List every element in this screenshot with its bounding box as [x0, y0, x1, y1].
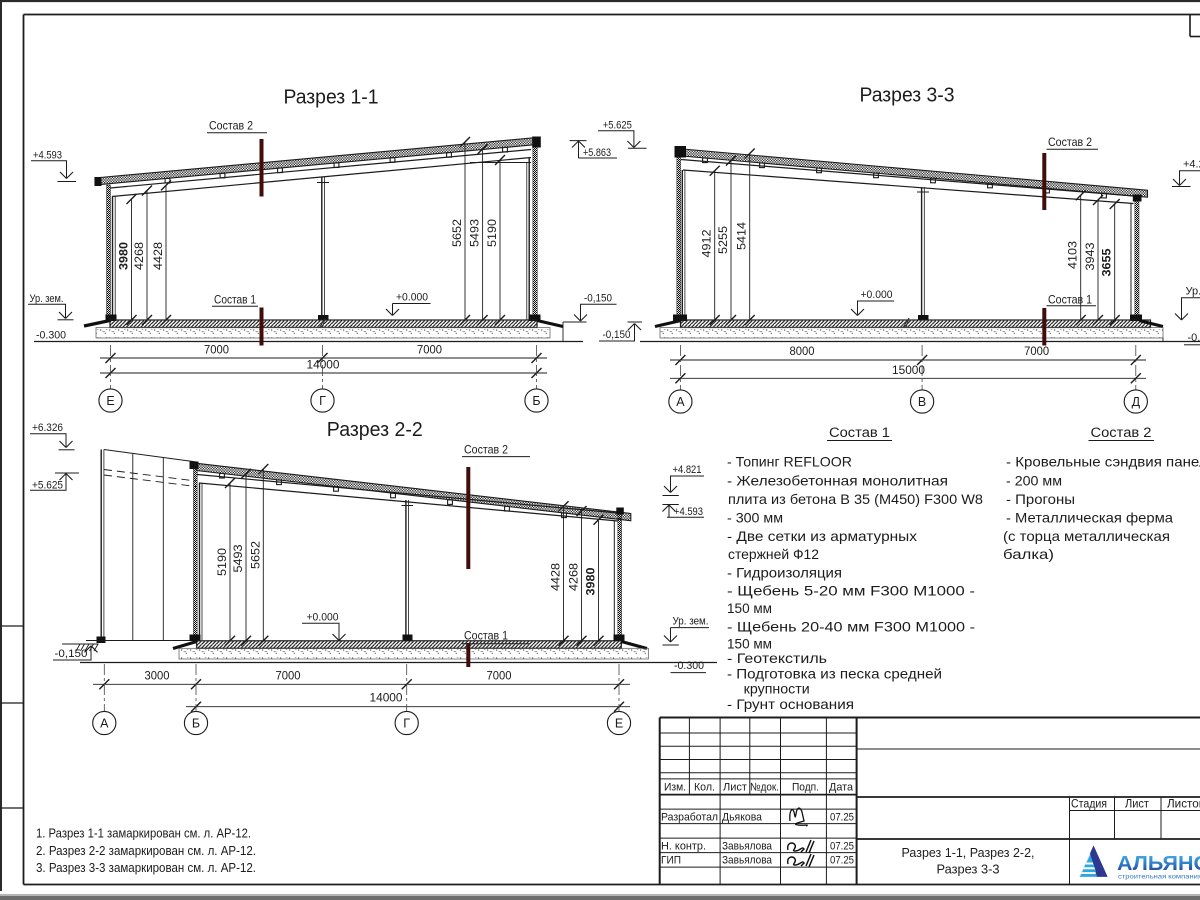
svg-text:- Кровельные сэндвия панели: - Кровельные сэндвия панели	[1006, 454, 1200, 470]
svg-text:5190: 5190	[217, 548, 229, 576]
svg-text:Разрез 1-1, Разрез 2-2,: Разрез 1-1, Разрез 2-2,	[902, 846, 1035, 860]
svg-text:(с торца металлическая: (с торца металлическая	[1003, 528, 1170, 544]
svg-text:А: А	[676, 395, 685, 409]
svg-text:7000: 7000	[204, 345, 229, 357]
svg-text:+4.293: +4.293	[1183, 159, 1200, 171]
svg-text:Состав 2: Состав 2	[209, 119, 253, 133]
svg-text:Состав 2: Состав 2	[464, 443, 508, 457]
svg-text:Б: Б	[532, 394, 540, 408]
svg-text:+5.863: +5.863	[583, 147, 611, 159]
svg-text:ГИП: ГИП	[661, 855, 681, 867]
svg-text:3. Разрез 3-3 замаркирован см.: 3. Разрез 3-3 замаркирован см. л. АР-12.	[36, 860, 256, 875]
svg-text:+0.000: +0.000	[861, 289, 893, 301]
svg-text:+0.000: +0.000	[307, 612, 339, 624]
svg-text:3980: 3980	[586, 568, 598, 596]
svg-text:Подп.: Подп.	[792, 782, 819, 794]
svg-text:- Топинг REFLOOR: - Топинг REFLOOR	[727, 454, 852, 470]
svg-text:Е: Е	[615, 716, 623, 730]
svg-text:- Щебень 20-40 мм F300 М1000: - Щебень 20-40 мм F300 М1000 -	[727, 618, 975, 634]
svg-text:4428: 4428	[153, 242, 165, 270]
svg-text:Состав 1: Состав 1	[464, 629, 508, 643]
svg-text:5493: 5493	[470, 219, 482, 247]
svg-text:Дата: Дата	[829, 782, 854, 794]
svg-text:+6.326: +6.326	[32, 422, 63, 434]
svg-text:Изм.: Изм.	[664, 782, 686, 794]
svg-text:крупности: крупности	[744, 680, 810, 696]
svg-text:+5.625: +5.625	[603, 120, 632, 132]
svg-text:строительная компания: строительная компания	[1118, 874, 1200, 881]
svg-text:-0.300: -0.300	[36, 330, 66, 342]
svg-text:4268: 4268	[134, 242, 146, 270]
svg-text:Разрез 1-1: Разрез 1-1	[284, 87, 379, 109]
svg-text:Дьякова: Дьякова	[722, 812, 763, 824]
svg-text:5255: 5255	[718, 226, 730, 254]
svg-text:Листов: Листов	[1167, 799, 1200, 811]
svg-text:- Щебень 5-20 мм F300 М1000: - Щебень 5-20 мм F300 М1000 -	[727, 582, 975, 598]
svg-text:2. Разрез 2-2 замаркирован см.: 2. Разрез 2-2 замаркирован см. л. АР-12.	[36, 843, 256, 858]
svg-text:4428: 4428	[551, 563, 563, 591]
svg-text:АЛЬЯНС: АЛЬЯНС	[1117, 852, 1200, 875]
svg-text:- Подготовка из песка средней: - Подготовка из песка средней	[727, 665, 942, 681]
svg-text:Ур. зем.: Ур. зем.	[1186, 286, 1200, 298]
svg-text:- Железобетонная монолитная: - Железобетонная монолитная	[727, 472, 948, 488]
svg-text:Кол.: Кол.	[694, 782, 715, 794]
svg-text:стержней Ф12: стержней Ф12	[728, 546, 819, 562]
svg-text:- Металлическая ферма: - Металлическая ферма	[1006, 510, 1173, 526]
svg-text:+4.593: +4.593	[33, 150, 62, 162]
svg-text:14000: 14000	[370, 693, 403, 705]
svg-text:4912: 4912	[702, 230, 714, 258]
svg-text:Завьялова: Завьялова	[722, 841, 773, 853]
svg-text:плита из бетона В 35 (М450) F3: плита из бетона В 35 (М450) F300 W8	[728, 491, 983, 507]
svg-text:150 мм: 150 мм	[727, 600, 772, 616]
svg-text:4268: 4268	[569, 563, 581, 591]
svg-text:Лист: Лист	[1125, 799, 1150, 811]
svg-text:Разрез 3-3: Разрез 3-3	[860, 85, 955, 107]
svg-text:14000: 14000	[307, 360, 340, 372]
svg-text:- 200 мм: - 200 мм	[1006, 472, 1062, 488]
svg-text:-0,150: -0,150	[55, 648, 88, 660]
svg-text:Е: Е	[106, 394, 114, 408]
svg-text:№док.: №док.	[750, 782, 779, 794]
svg-text:Стадия: Стадия	[1071, 799, 1107, 811]
svg-text:Завьялова: Завьялова	[722, 855, 773, 867]
svg-text:- Грунт основания: - Грунт основания	[727, 696, 854, 712]
svg-text:3655: 3655	[1102, 248, 1114, 277]
svg-text:3000: 3000	[145, 671, 170, 683]
svg-text:5190: 5190	[487, 219, 499, 247]
svg-text:5414: 5414	[737, 221, 749, 250]
svg-text:+5.625: +5.625	[32, 479, 63, 491]
svg-text:- 300 мм: - 300 мм	[727, 510, 783, 526]
svg-text:-0.300: -0.300	[674, 660, 704, 672]
svg-text:Состав 1: Состав 1	[214, 293, 256, 307]
svg-text:Г: Г	[319, 394, 326, 408]
svg-text:8000: 8000	[790, 346, 815, 358]
svg-text:Ур. зем.: Ур. зем.	[30, 293, 64, 305]
svg-text:Состав 1: Состав 1	[1048, 293, 1092, 307]
svg-text:150 мм: 150 мм	[727, 635, 772, 651]
svg-text:+4.593: +4.593	[674, 506, 703, 518]
svg-text:Разрез 2-2: Разрез 2-2	[327, 419, 423, 441]
svg-text:А: А	[100, 716, 109, 730]
svg-text:07.25: 07.25	[830, 812, 854, 824]
svg-text:3943: 3943	[1085, 243, 1097, 271]
svg-text:Состав 1: Состав 1	[829, 425, 890, 440]
svg-text:5493: 5493	[233, 545, 245, 573]
svg-text:+4.821: +4.821	[673, 464, 702, 476]
svg-text:-0.300: -0.300	[1188, 332, 1200, 344]
svg-text:Состав 2: Состав 2	[1091, 425, 1152, 440]
svg-text:7000: 7000	[417, 345, 442, 357]
svg-text:Ур. зем.: Ур. зем.	[673, 616, 709, 628]
svg-text:Д: Д	[1132, 395, 1141, 409]
svg-text:- Геотекстиль: - Геотекстиль	[727, 650, 827, 666]
svg-text:+0.000: +0.000	[396, 292, 428, 304]
svg-text:-0,150: -0,150	[584, 293, 612, 305]
svg-text:07.25: 07.25	[830, 855, 854, 867]
svg-text:7000: 7000	[276, 671, 301, 683]
svg-text:3980: 3980	[119, 242, 131, 270]
svg-text:В: В	[918, 395, 926, 409]
svg-text:Б: Б	[192, 716, 200, 730]
svg-text:5652: 5652	[452, 219, 464, 247]
svg-text:-0,150: -0,150	[603, 329, 631, 341]
svg-text:7000: 7000	[487, 671, 512, 683]
svg-text:4103: 4103	[1068, 241, 1080, 269]
svg-text:- Прогоны: - Прогоны	[1006, 491, 1075, 507]
svg-text:Состав 2: Состав 2	[1048, 135, 1092, 149]
svg-text:Г: Г	[403, 716, 410, 730]
svg-text:15000: 15000	[892, 365, 925, 377]
svg-text:1. Разрез 1-1 замаркирован см.: 1. Разрез 1-1 замаркирован см. л. АР-12.	[36, 826, 251, 841]
svg-text:Лист: Лист	[723, 782, 747, 794]
svg-text:5652: 5652	[250, 541, 262, 569]
svg-text:Н. контр.: Н. контр.	[661, 841, 706, 853]
svg-text:балка): балка)	[1003, 546, 1054, 562]
svg-text:7000: 7000	[1024, 346, 1049, 358]
svg-text:- Две сетки из арматурных: - Две сетки из арматурных	[727, 528, 917, 544]
svg-text:Разработал: Разработал	[661, 812, 718, 824]
svg-text:07.25: 07.25	[830, 841, 854, 853]
svg-text:Разрез 3-3: Разрез 3-3	[937, 863, 1000, 877]
svg-text:- Гидроизоляция: - Гидроизоляция	[727, 565, 842, 581]
